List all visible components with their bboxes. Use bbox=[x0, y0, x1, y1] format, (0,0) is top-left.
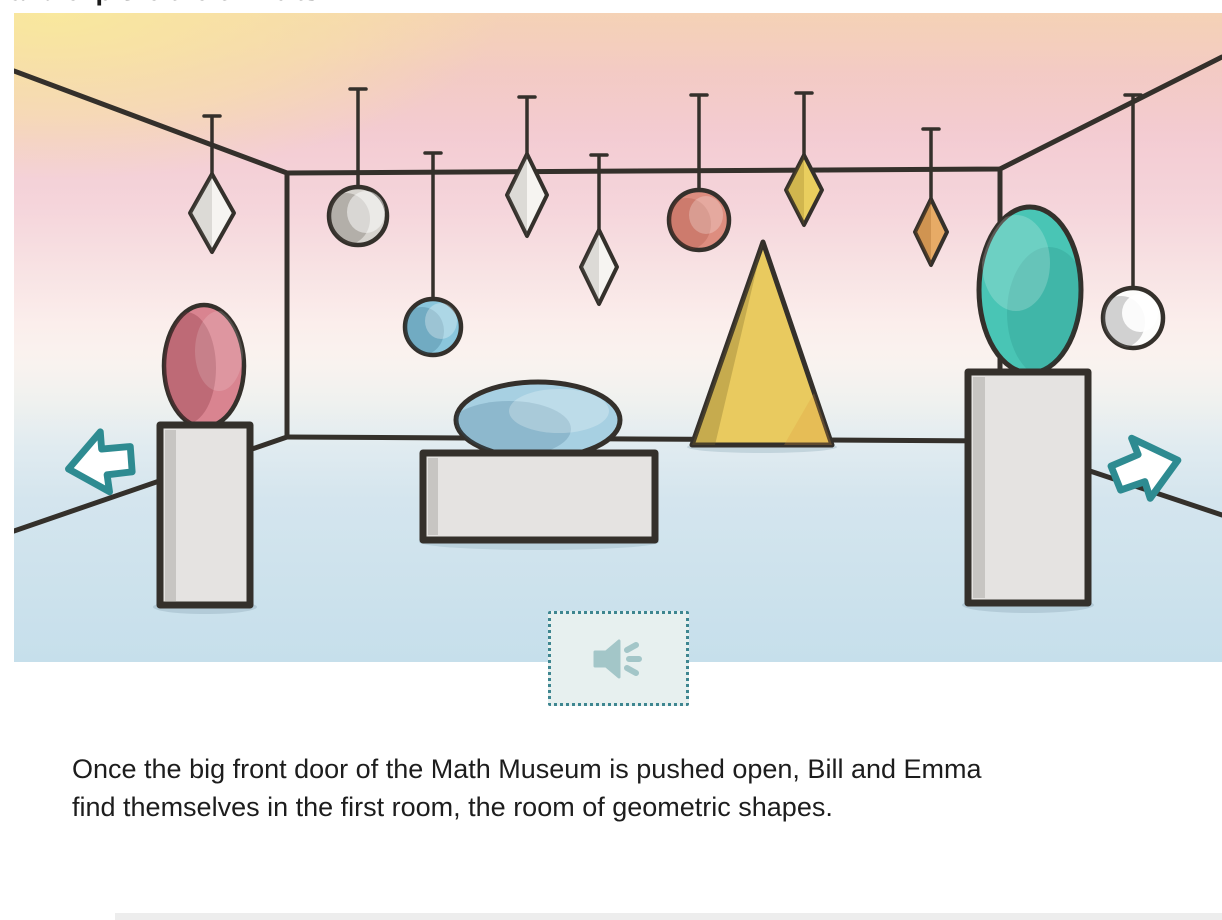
storybook-page: and explore the exhibits. bbox=[0, 0, 1222, 920]
page-bottom-edge bbox=[115, 913, 1222, 920]
hanging-white-circle bbox=[1097, 95, 1163, 348]
hanging-yellow-diamond bbox=[786, 93, 822, 225]
prev-page-button[interactable] bbox=[62, 425, 142, 501]
hanging-orange-diamond bbox=[915, 129, 947, 265]
story-line-2: find themselves in the first room, the r… bbox=[72, 792, 833, 822]
blue-oval-exhibit bbox=[423, 382, 655, 540]
next-page-button[interactable] bbox=[1103, 427, 1189, 507]
audio-play-button[interactable] bbox=[548, 611, 689, 706]
hanging-gray-circle bbox=[322, 89, 387, 245]
arrow-right-icon bbox=[1103, 427, 1189, 507]
yellow-triangle-exhibit bbox=[692, 242, 832, 445]
hanging-white-diamond-1 bbox=[190, 116, 234, 252]
center-block bbox=[423, 453, 655, 540]
hanging-blue-circle bbox=[400, 153, 461, 355]
museum-scene-drawing bbox=[14, 13, 1222, 662]
clipped-text-line: and explore the exhibits. bbox=[10, 0, 470, 7]
arrow-left-icon bbox=[62, 425, 142, 501]
teal-oval-exhibit bbox=[968, 207, 1091, 603]
story-line-1: Once the big front door of the Math Muse… bbox=[72, 754, 982, 784]
hanging-white-diamond-3 bbox=[581, 155, 617, 304]
right-pedestal bbox=[968, 372, 1088, 603]
story-text: Once the big front door of the Math Muse… bbox=[72, 750, 1132, 826]
museum-illustration bbox=[14, 13, 1222, 662]
speaker-icon bbox=[593, 636, 645, 682]
pink-oval-exhibit bbox=[156, 305, 250, 605]
clipped-text: and explore the exhibits. bbox=[10, 0, 470, 7]
hanging-white-diamond-2 bbox=[507, 97, 547, 236]
